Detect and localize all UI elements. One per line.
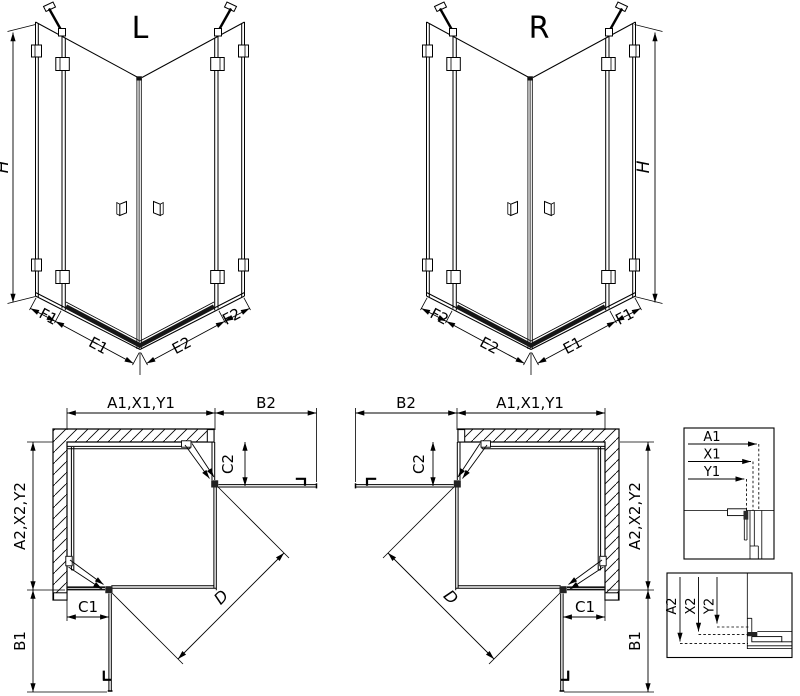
iso-right-title: R bbox=[529, 11, 550, 46]
dim-label-c1-left-plan: C1 bbox=[78, 598, 98, 616]
dim-label-e1-right: E1 bbox=[560, 333, 585, 358]
detail-label-y1: Y1 bbox=[703, 465, 720, 480]
dim-label-b1-right-plan: B1 bbox=[626, 631, 644, 651]
dim-label-depth-left-plan: A2,X2,Y2 bbox=[11, 482, 29, 550]
dim-label-d-right-plan: D bbox=[440, 586, 462, 608]
detail-label-x1: X1 bbox=[703, 448, 720, 463]
plan-left-view: A1,X1,Y1 B2 A2,X2,Y2 B1 C2 C1 D bbox=[11, 394, 317, 692]
dim-label-c2-right-plan: C2 bbox=[410, 454, 428, 474]
detail-label-a1: A1 bbox=[703, 430, 720, 445]
dim-label-c2-left-plan: C2 bbox=[219, 454, 237, 474]
technical-drawing-page: L H F1 E1 E2 F2 R H F2 E2 E1 F1 bbox=[0, 0, 800, 696]
dim-label-d-left-plan: D bbox=[210, 586, 232, 608]
wall-section-left-plan bbox=[53, 429, 214, 600]
dim-label-depth-right-plan: A2,X2,Y2 bbox=[626, 482, 644, 550]
detail-label-a2: A2 bbox=[665, 597, 680, 614]
iso-left-view: L H F1 E1 E2 F2 bbox=[0, 2, 251, 375]
dim-label-width-left-plan: A1,X1,Y1 bbox=[107, 394, 175, 412]
detail-label-x2: X2 bbox=[684, 597, 699, 614]
shower-enclosure-technical-drawing: L H F1 E1 E2 F2 R H F2 E2 E1 F1 bbox=[0, 0, 800, 696]
dim-label-b1-left-plan: B1 bbox=[11, 631, 29, 651]
dim-label-width-right-plan: A1,X1,Y1 bbox=[496, 394, 564, 412]
dim-label-e2-left: E2 bbox=[169, 333, 194, 358]
dim-label-e2-right: E2 bbox=[477, 333, 502, 358]
dim-label-b2-right-plan: B2 bbox=[396, 394, 416, 412]
detail-depth-box: A2 X2 Y2 bbox=[665, 573, 792, 658]
detail-label-y2: Y2 bbox=[703, 598, 718, 615]
iso-right-view: R H F2 E2 E1 F1 bbox=[421, 2, 663, 375]
dim-label-b2-left-plan: B2 bbox=[256, 394, 276, 412]
plan-right-view: B2 A1,X1,Y1 A2,X2,Y2 B1 C2 C1 D bbox=[356, 394, 655, 692]
iso-left-title: L bbox=[132, 11, 149, 46]
dim-label-height-right: H bbox=[634, 160, 654, 173]
dim-label-f1-left: F1 bbox=[36, 304, 60, 328]
detail-width-box: A1 X1 Y1 bbox=[684, 428, 774, 559]
dim-label-c1-right-plan: C1 bbox=[575, 598, 595, 616]
wall-section-right-plan bbox=[458, 429, 619, 600]
dim-label-height-left: H bbox=[0, 160, 13, 173]
dim-label-f1-right: F1 bbox=[612, 304, 636, 328]
dim-label-f2-right: F2 bbox=[427, 304, 451, 328]
dim-label-f2-left: F2 bbox=[219, 304, 243, 328]
dim-label-e1-left: E1 bbox=[86, 333, 111, 358]
